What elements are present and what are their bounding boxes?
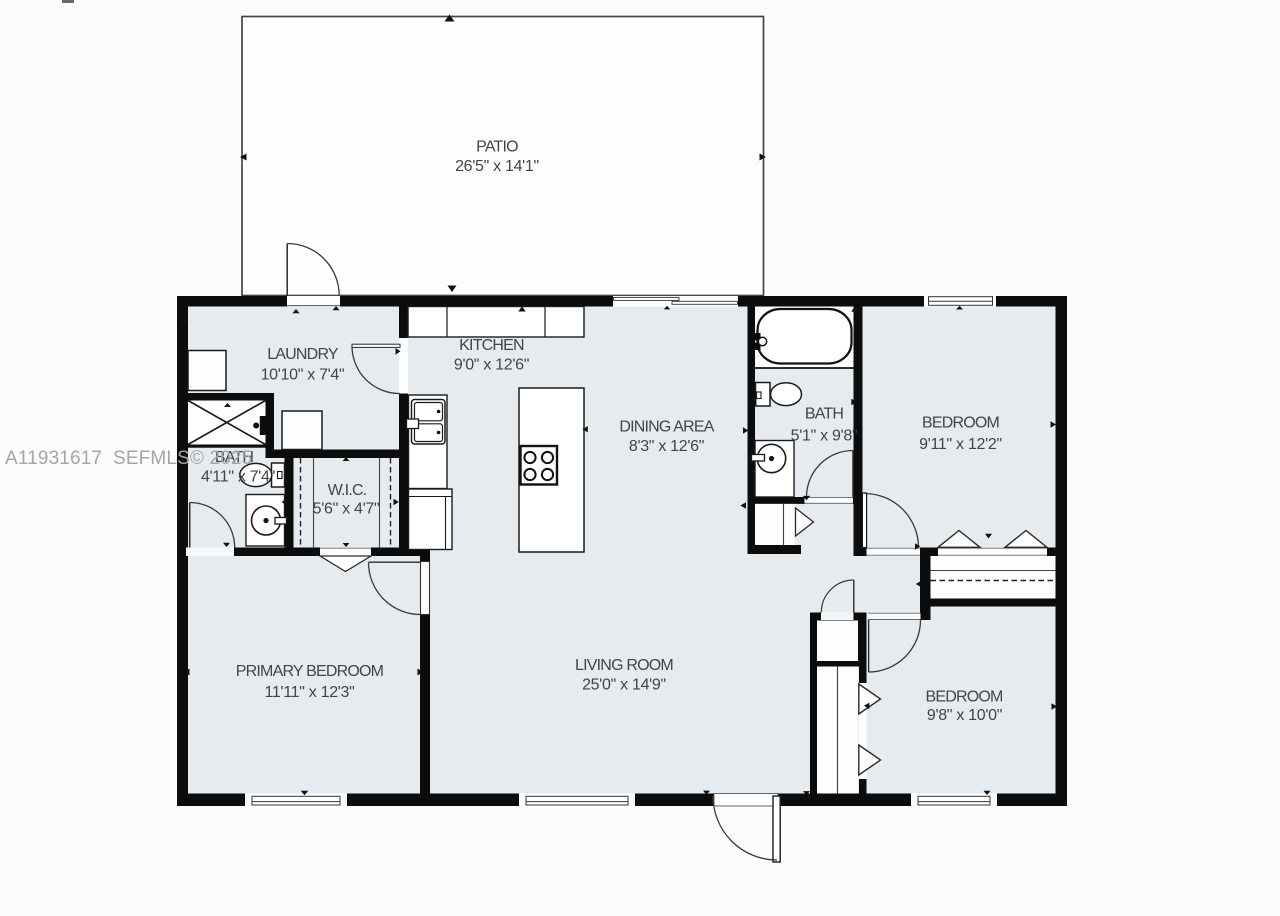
svg-text:11'11" x 12'3": 11'11" x 12'3" <box>264 684 354 701</box>
svg-text:BATH: BATH <box>805 406 844 423</box>
svg-text:8'3" x 12'6": 8'3" x 12'6" <box>629 438 704 455</box>
svg-text:LAUNDRY: LAUNDRY <box>267 346 339 363</box>
svg-text:4'11" x 7'4": 4'11" x 7'4" <box>201 469 275 486</box>
svg-text:BEDROOM: BEDROOM <box>922 415 1000 432</box>
svg-text:KITCHEN: KITCHEN <box>459 337 524 354</box>
svg-text:9'0" x 12'6": 9'0" x 12'6" <box>454 357 529 374</box>
svg-text:LIVING ROOM: LIVING ROOM <box>575 657 673 674</box>
svg-text:25'0" x 14'9": 25'0" x 14'9" <box>582 677 666 694</box>
svg-text:9'8" x 10'0": 9'8" x 10'0" <box>927 707 1002 724</box>
svg-text:BEDROOM: BEDROOM <box>925 689 1003 706</box>
svg-text:PATIO: PATIO <box>476 139 518 156</box>
svg-text:A11931617 SEFMLS© 2025: A11931617 SEFMLS© 2025 <box>5 448 252 469</box>
svg-text:5'6" x 4'7": 5'6" x 4'7" <box>313 501 380 518</box>
svg-text:W.I.C.: W.I.C. <box>328 482 367 499</box>
svg-text:26'5" x 14'1": 26'5" x 14'1" <box>455 158 539 175</box>
svg-text:DINING AREA: DINING AREA <box>619 419 714 436</box>
svg-text:PRIMARY BEDROOM: PRIMARY BEDROOM <box>236 663 384 680</box>
svg-text:5'1" x 9'8": 5'1" x 9'8" <box>791 428 858 445</box>
svg-text:10'10" x 7'4": 10'10" x 7'4" <box>261 367 345 384</box>
svg-text:9'11" x 12'2": 9'11" x 12'2" <box>919 436 1002 453</box>
